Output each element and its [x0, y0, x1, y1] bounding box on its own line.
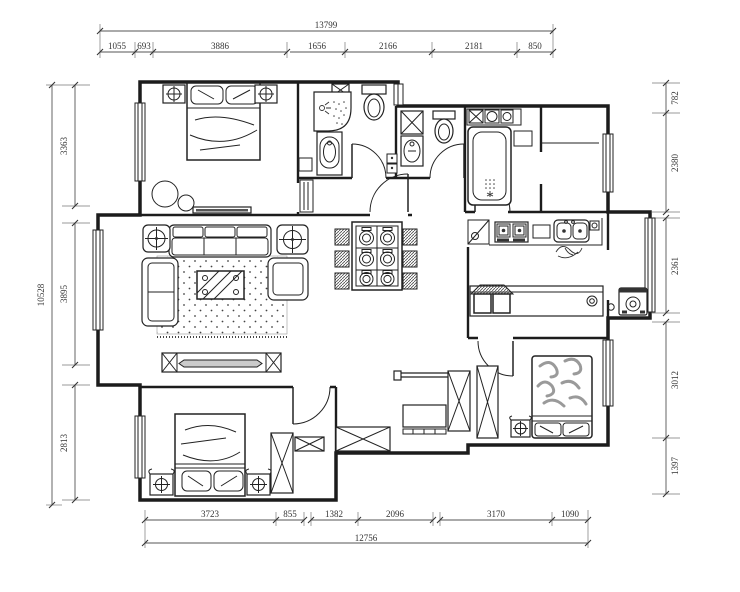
dimension-chain-bottom: 3723 855 1382 2096 3170 1090 12756: [142, 509, 591, 548]
vanity-icon: [467, 109, 521, 125]
sink-icon: [401, 136, 423, 166]
dim-label: 782: [670, 91, 680, 105]
loveseat-icon: [142, 258, 178, 326]
dim-label: 2361: [670, 257, 680, 275]
tv-icon: [179, 360, 262, 367]
ensuite-bathroom: [467, 109, 532, 205]
dim-label: 850: [528, 41, 542, 51]
dim-label: 3895: [59, 285, 69, 304]
dining-table-icon: [352, 222, 402, 290]
tv-bench-icon: [193, 207, 251, 213]
dimension-ticks: [97, 28, 556, 55]
wardrobe-icon: [271, 433, 324, 493]
window-icon: [603, 340, 613, 406]
bench-icon: [403, 405, 446, 434]
bathroom-b: [401, 111, 455, 166]
door-icon: [370, 174, 408, 212]
floor-plan-page: 13799 1055 693 3886 1656 2166 2181 850: [0, 0, 740, 592]
bedroom-bottom-right: [477, 356, 592, 438]
dim-label: 1055: [108, 41, 127, 51]
washer-box-icon: [387, 154, 397, 173]
dim-label: 1382: [325, 509, 343, 519]
door-icon: [430, 144, 464, 178]
fridge-counter: [470, 285, 603, 316]
faucet-box-icon: [590, 221, 599, 230]
dim-label: 10528: [36, 283, 46, 306]
dim-label: 2096: [386, 509, 405, 519]
nightstand-icon: [163, 85, 185, 103]
living-room: [142, 225, 308, 372]
side-table-lamp-icon: [277, 225, 308, 254]
dim-label: 2166: [379, 41, 398, 51]
bedroom-top-left: [152, 83, 313, 213]
door-icon: [293, 387, 330, 424]
toilet-icon: [362, 85, 386, 120]
shower-icon: [314, 92, 351, 131]
dim-label: 3886: [211, 41, 230, 51]
hall-cabinet-icon: [448, 371, 470, 431]
nightstand-icon: [149, 469, 174, 495]
dining-set: [335, 222, 417, 290]
shaft-icon: [514, 131, 532, 146]
double-sink-icon: [554, 220, 589, 242]
window-icon: [394, 84, 403, 105]
wardrobe-icon: [477, 366, 498, 438]
bathtub-icon: [468, 127, 511, 205]
dresser-icon: [299, 158, 313, 212]
tv-cabinet-icon: [162, 353, 281, 372]
nightstand-icon: [246, 469, 271, 495]
double-bed-icon: [187, 83, 260, 160]
dim-label: 2380: [670, 154, 680, 173]
window-icon: [135, 416, 145, 478]
dim-label: 1397: [670, 457, 680, 476]
double-bed-icon: [175, 414, 245, 496]
dim-label: 2181: [465, 41, 483, 51]
dim-label: 855: [283, 509, 297, 519]
dim-label: 1656: [308, 41, 327, 51]
dimension-chain-left: 3363 3895 2813 10528: [36, 82, 90, 508]
armchair-icon: [268, 258, 308, 300]
dim-label: 3012: [670, 371, 680, 389]
dim-label: 693: [137, 41, 151, 51]
armchair-icon: [152, 181, 194, 211]
dim-label: 1090: [561, 509, 580, 519]
dim-label: 12756: [355, 533, 378, 543]
bedroom-bottom-left: [149, 414, 324, 496]
dim-label: 3363: [59, 137, 69, 156]
bathroom-a: [314, 84, 397, 175]
washing-machine-icon: [619, 288, 647, 315]
coffee-table-icon: [197, 271, 244, 299]
window-icon: [603, 134, 613, 192]
decor-sketch-icon: [556, 246, 582, 257]
door-icon: [352, 144, 386, 178]
cabinet-icon: [401, 111, 423, 134]
dim-label: 3170: [487, 509, 506, 519]
cutting-board-icon: [533, 225, 550, 238]
side-table-lamp-icon: [143, 225, 170, 252]
dim-label: 2813: [59, 434, 69, 453]
sofa-icon: [169, 225, 271, 257]
kitchen: [468, 218, 602, 258]
floor-plan-canvas: 13799 1055 693 3886 1656 2166 2181 850: [0, 0, 740, 592]
dimension-chain-top: 13799 1055 693 3886 1656 2166 2181 850: [97, 20, 556, 58]
window-icon: [93, 230, 103, 330]
shoe-cabinet-icon: [336, 427, 390, 451]
stove-icon: [495, 222, 528, 242]
toilet-icon: [433, 111, 455, 143]
dim-label: 13799: [315, 20, 338, 30]
double-bed-icon: [532, 356, 592, 438]
utility-balcony: [608, 288, 647, 315]
fridge-icon: [471, 285, 513, 313]
nightstand-icon: [510, 416, 532, 437]
sliding-door-icon: [394, 371, 448, 380]
dimension-chain-right: 782 2380 2361 3012 1397: [652, 80, 680, 497]
sink-icon: [317, 132, 342, 175]
dim-label: 3723: [201, 509, 220, 519]
entry-hall: [336, 371, 470, 451]
nightstand-icon: [255, 85, 277, 103]
window-icon: [135, 103, 145, 181]
